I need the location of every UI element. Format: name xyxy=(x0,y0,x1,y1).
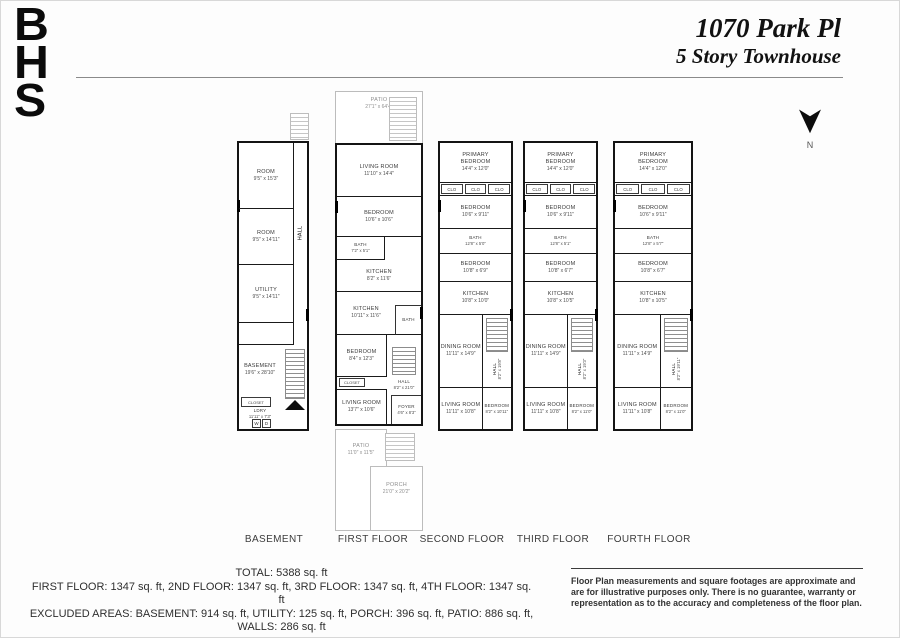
ff-bath-1: BATH 7'2" x 5'1" xyxy=(337,237,385,260)
ff-hall-label: HALL 8'2" x 21'0" xyxy=(387,375,421,395)
basement-hall: HALL xyxy=(294,143,307,345)
ff-closet-label: CLOSET xyxy=(344,380,360,385)
rf-closet-2: CLO xyxy=(641,184,664,194)
sf-dining-room: DINING ROOM 11'11" x 14'9" xyxy=(440,315,483,387)
dryer-label: D xyxy=(265,421,268,426)
floor-sqft: FIRST FLOOR: 1347 sq. ft, 2ND FLOOR: 134… xyxy=(29,581,534,608)
rf-closet-1: CLO xyxy=(616,184,639,194)
tf-bedroom-3: BEDROOM 8'2" x 11'0" xyxy=(568,387,596,429)
ff-closet: CLOSET xyxy=(339,378,365,387)
title-block: 1070 Park Pl 5 Story Townhouse xyxy=(676,13,841,69)
tf-bedroom-1: BEDROOM 10'6" x 9'11" xyxy=(525,196,596,229)
tf-closet-1: CLO xyxy=(526,184,548,194)
compass-label: N xyxy=(798,140,822,150)
floorplan-fourth-floor: PRIMARY BEDROOM 14'4" x 12'0" CLO CLO CL… xyxy=(613,141,693,431)
bhs-logo: B H S xyxy=(14,5,49,119)
sf-bedroom-3: BEDROOM 8'2" x 10'11" xyxy=(483,387,511,429)
ff-hall: HALL 8'2" x 21'0" xyxy=(387,335,421,395)
ff-stairs xyxy=(392,347,416,375)
front-patio-label: PATIO 11'0" x 11'5" xyxy=(336,440,386,460)
basement-closet: CLOSET xyxy=(241,397,271,407)
rf-bath: BATH 12'8" x 5'7" xyxy=(615,229,691,254)
tf-stairs xyxy=(571,318,593,352)
basement-bath-nook xyxy=(239,323,294,345)
basement-utility: UTILITY 9'5" x 14'11" xyxy=(239,265,294,323)
porch-label: PORCH 21'0" x 20'2" xyxy=(371,479,422,499)
sf-bath: BATH 12'8" x 5'0" xyxy=(440,229,511,254)
tf-living-room: LIVING ROOM 11'11" x 10'8" xyxy=(525,387,568,429)
ff-bedroom-1: BEDROOM 10'6" x 10'6" xyxy=(337,197,421,237)
floorplan-third-floor: PRIMARY BEDROOM 14'4" x 12'0" CLO CLO CL… xyxy=(523,141,598,431)
sf-closet-row: CLO CLO CLO xyxy=(440,183,511,196)
sf-closet-2: CLO xyxy=(465,184,487,194)
rf-hall: HALL 8'2" x 19'11" xyxy=(661,315,691,387)
sf-hall-label: HALL 8'2" x 19'8" xyxy=(481,355,513,383)
basement-main-room: BASEMENT 19'6" x 28'10" xyxy=(239,345,281,395)
caption-fourth-floor: FOURTH FLOOR xyxy=(594,534,704,545)
ff-kitchen-2: KITCHEN 10'11" x 11'6" xyxy=(337,292,395,335)
floorplan-second-floor: PRIMARY BEDROOM 14'4" x 12'0" CLO CLO CL… xyxy=(438,141,513,431)
tf-bedroom-2: BEDROOM 10'8" x 6'7" xyxy=(525,254,596,282)
floorplan-sheet: B H S 1070 Park Pl 5 Story Townhouse N R… xyxy=(0,0,900,638)
page-subtitle: 5 Story Townhouse xyxy=(676,43,841,69)
rf-closet-row: CLO CLO CLO xyxy=(615,183,691,196)
tf-kitchen: KITCHEN 10'8" x 10'5" xyxy=(525,282,596,315)
rf-bedroom-3: BEDROOM 8'2" x 11'0" xyxy=(661,387,691,429)
sf-bedroom-2: BEDROOM 10'8" x 6'9" xyxy=(440,254,511,282)
sf-closet-1: CLO xyxy=(441,184,463,194)
basement-room-1: ROOM 9'5" x 15'3" xyxy=(239,143,294,209)
page-title: 1070 Park Pl xyxy=(676,13,841,43)
washer-label: W xyxy=(254,421,258,426)
total-sqft: TOTAL: 5388 sq. ft xyxy=(29,567,534,581)
logo-letter-s: S xyxy=(14,81,49,119)
sf-primary-bedroom: PRIMARY BEDROOM 14'4" x 12'0" xyxy=(440,143,511,183)
tf-primary-bedroom: PRIMARY BEDROOM 14'4" x 12'0" xyxy=(525,143,596,183)
rf-hall-label: HALL 8'2" x 19'11" xyxy=(660,354,692,384)
floorplan-first-floor: LIVING ROOM 11'10" x 14'4" BEDROOM 10'6"… xyxy=(335,143,423,426)
sf-stairs xyxy=(486,318,508,352)
rf-bedroom-2: BEDROOM 10'8" x 6'7" xyxy=(615,254,691,282)
basement-closet-label: CLOSET xyxy=(248,400,264,405)
ff-kitchen-1: KITCHEN 8'2" x 11'6" xyxy=(337,260,421,292)
ff-bath-2: BATH xyxy=(395,305,421,335)
tf-closet-3: CLO xyxy=(573,184,595,194)
sf-kitchen: KITCHEN 10'8" x 10'0" xyxy=(440,282,511,315)
firstfloor-rear-patio: PATIO 27'1" x 64'4" xyxy=(335,91,423,144)
disclaimer-text: Floor Plan measurements and square foota… xyxy=(571,568,863,609)
rf-bedroom-1: BEDROOM 10'6" x 9'11" xyxy=(615,196,691,229)
tf-bath: BATH 12'8" x 5'1" xyxy=(525,229,596,254)
north-arrow-glyph xyxy=(799,107,821,134)
north-arrow-icon: N xyxy=(798,107,822,150)
rf-dining-room: DINING ROOM 11'11" x 14'9" xyxy=(615,315,661,387)
rf-primary-bedroom: PRIMARY BEDROOM 14'4" x 12'0" xyxy=(615,143,691,183)
tf-hall: HALL 8'2" x 19'3" xyxy=(568,315,596,387)
ff-foyer: FOYER 4'6" x 8'3" xyxy=(391,395,421,424)
caption-third-floor: THIRD FLOOR xyxy=(498,534,608,545)
sf-hall: HALL 8'2" x 19'8" xyxy=(483,315,511,387)
tf-closet-row: CLO CLO CLO xyxy=(525,183,596,196)
firstfloor-porch: PORCH 21'0" x 20'2" xyxy=(370,466,423,531)
front-patio-stairs xyxy=(385,433,415,461)
tf-closet-2: CLO xyxy=(550,184,572,194)
rf-kitchen: KITCHEN 10'8" x 10'5" xyxy=(615,282,691,315)
washer-box: W xyxy=(252,419,261,428)
ff-bedroom-2: BEDROOM 8'4" x 12'3" xyxy=(337,335,387,377)
basement-stair-landing xyxy=(285,400,305,410)
rf-living-room: LIVING ROOM 11'11" x 10'8" xyxy=(615,387,661,429)
sf-living-room: LIVING ROOM 11'11" x 10'8" xyxy=(440,387,483,429)
square-footage-summary: TOTAL: 5388 sq. ft FIRST FLOOR: 1347 sq.… xyxy=(29,567,534,635)
tf-dining-room: DINING ROOM 11'11" x 14'9" xyxy=(525,315,568,387)
caption-basement: BASEMENT xyxy=(219,534,329,545)
tf-hall-label: HALL 8'2" x 19'3" xyxy=(566,355,598,383)
basement-entry-stairs xyxy=(290,113,309,140)
dryer-box: D xyxy=(262,419,271,428)
ff-living-room-2: LIVING ROOM 13'7" x 10'6" xyxy=(337,389,387,424)
sf-bedroom-1: BEDROOM 10'6" x 9'11" xyxy=(440,196,511,229)
rf-closet-3: CLO xyxy=(667,184,690,194)
ff-living-room-1: LIVING ROOM 11'10" x 14'4" xyxy=(337,145,421,197)
excluded-sqft: EXCLUDED AREAS: BASEMENT: 914 sq. ft, UT… xyxy=(29,608,534,635)
header-divider xyxy=(76,77,843,78)
basement-stairs xyxy=(285,349,305,399)
sf-closet-3: CLO xyxy=(488,184,510,194)
basement-hall-label: HALL xyxy=(271,227,331,240)
floorplan-basement: ROOM 9'5" x 15'3" ROOM 9'5" x 14'11" UTI… xyxy=(237,141,309,431)
rear-patio-stairs xyxy=(389,97,417,141)
rf-stairs xyxy=(664,318,688,352)
